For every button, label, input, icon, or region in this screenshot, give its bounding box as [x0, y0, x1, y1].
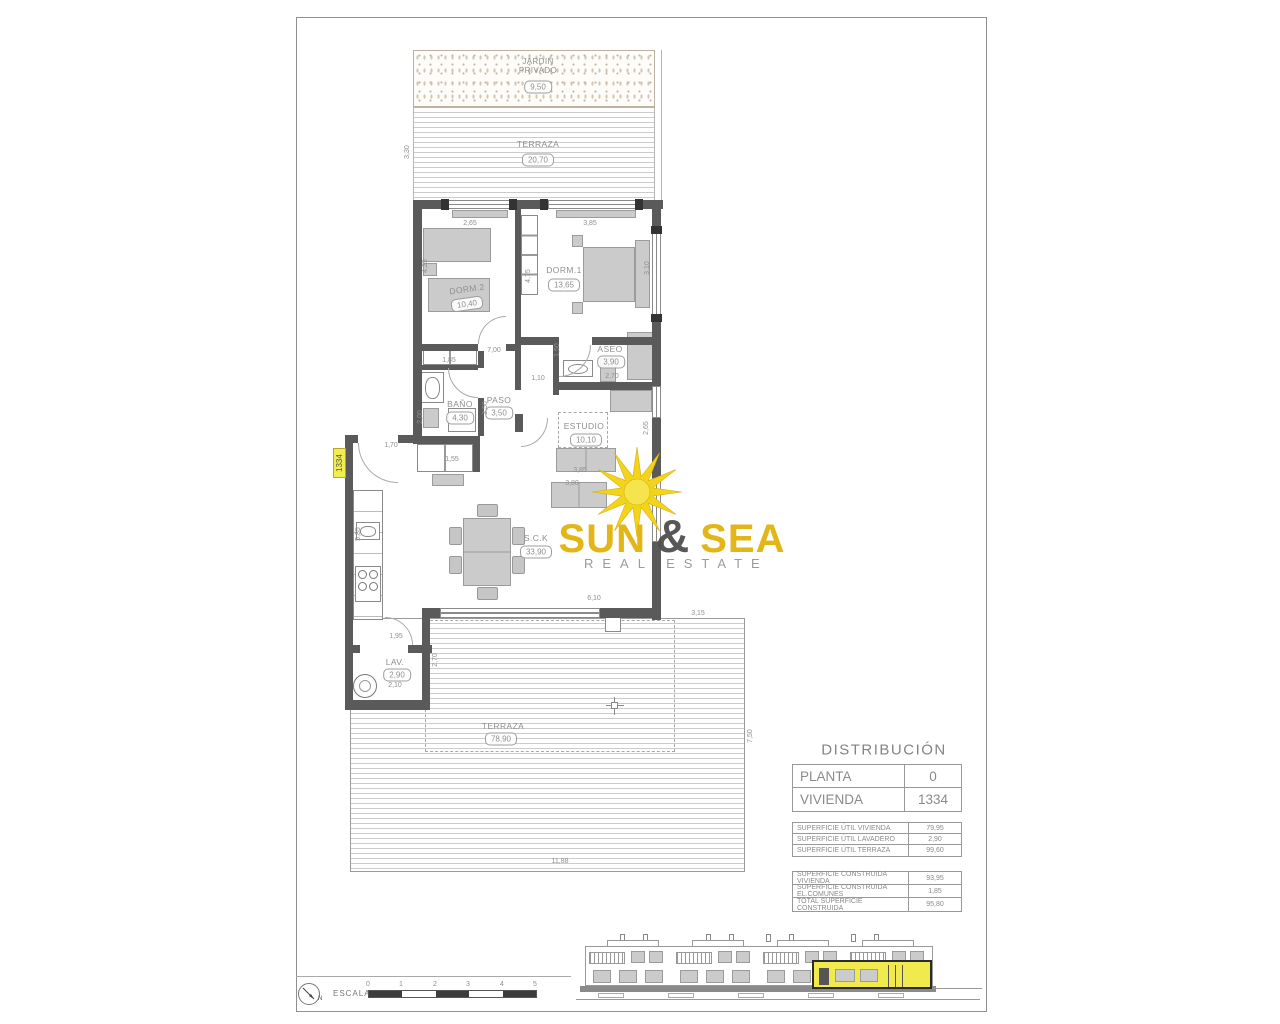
dimension-label: 11,88 [552, 858, 569, 866]
wall [478, 351, 484, 368]
footing [668, 993, 694, 998]
wardrobe [521, 215, 538, 295]
nightstand [572, 235, 583, 247]
door-mat [432, 474, 464, 486]
dimension-label: 4,25 [422, 259, 430, 273]
dimension-label: 1,10 [531, 375, 545, 383]
north-letter: N [318, 996, 322, 1002]
wall-end-marker [651, 314, 662, 322]
burner-icon [358, 570, 367, 579]
dimension-label: 3,30 [404, 145, 412, 159]
dimension-label: 2,00 [417, 410, 425, 424]
bed [423, 228, 491, 262]
dimension-label: 3,85 [583, 220, 597, 228]
roof-vent [766, 934, 771, 942]
table-row: VIVIENDA 1334 [793, 788, 961, 811]
unit-railing-line [902, 965, 903, 987]
building-elevation [576, 928, 982, 1004]
table-row: SUPERFICIE ÚTIL TERRAZA 99,60 [793, 845, 961, 856]
drain-marker [606, 697, 624, 715]
scale-tick: 0 [366, 981, 370, 989]
area-box-dorm1: 13,65 [548, 279, 580, 292]
bed [583, 247, 635, 302]
window [448, 200, 510, 209]
terrace-step [605, 616, 621, 632]
row-value: 79,95 [908, 823, 961, 833]
row-value: 1,85 [908, 885, 961, 897]
window [548, 200, 636, 209]
distribution-main-table: PLANTA 0 VIVIENDA 1334 [792, 764, 962, 812]
dimension-label: 7,50 [747, 729, 755, 743]
dimension-label: 2,65 [463, 220, 477, 228]
table-row: TOTAL SUPERFICIE CONSTRUIDA 95,80 [793, 898, 961, 911]
window [736, 951, 750, 963]
room-label-jardin: JARDIN PRIVADO [506, 57, 570, 75]
dimension-label: 2,70 [605, 373, 619, 381]
footing [598, 993, 624, 998]
scale-tick: 3 [466, 981, 470, 989]
window [645, 970, 663, 983]
scale-tick: 1 [399, 981, 403, 989]
room-label-terraza-top: TERRAZA [517, 139, 559, 149]
dimension-label: 3,15 [691, 610, 705, 618]
wall [413, 436, 480, 444]
chair [449, 556, 462, 574]
room-label-paso: PASO [487, 395, 512, 405]
unit-number-tag: 1334 [333, 448, 346, 478]
wall [345, 645, 360, 653]
area-box-bano: 4,30 [446, 412, 474, 425]
window-sill [452, 210, 508, 218]
room-label-sck: S.C.K [524, 533, 548, 543]
dimension-label: 7,00 [487, 347, 501, 355]
window [652, 233, 661, 315]
wall-end-marker [635, 199, 643, 210]
footing [808, 993, 834, 998]
row-value: 2,90 [908, 834, 961, 844]
row-value: 93,95 [908, 872, 961, 884]
footing [878, 993, 904, 998]
row-label: SUPERFICIE CONSTRUIDA VIVIENDA [793, 871, 908, 885]
burner-icon [369, 570, 378, 579]
logo-ampersand: & [656, 509, 690, 563]
wall [345, 435, 353, 710]
area-box-terraza: 78,90 [485, 733, 517, 746]
dimension-label: 2,10 [388, 682, 402, 690]
room-label-bano: BAÑO [447, 399, 473, 409]
balcony-railing [676, 952, 712, 964]
window [631, 951, 645, 963]
window [767, 970, 785, 983]
window-sill [556, 210, 636, 218]
room-label-terraza: TERRAZA [482, 721, 524, 731]
wall [423, 608, 440, 618]
burner-icon [358, 582, 367, 591]
window [860, 969, 878, 982]
wall [422, 608, 430, 708]
footing [738, 993, 764, 998]
row-value: 0 [904, 765, 961, 787]
scale-segment [369, 991, 402, 997]
dimension-label: 1,95 [389, 633, 403, 641]
dimension-label: 2,70 [432, 653, 440, 667]
chair [449, 527, 462, 545]
ground-line [930, 988, 982, 989]
window [593, 970, 611, 983]
plot-boundary-line [661, 50, 662, 201]
table-row: SUPERFICIE ÚTIL LAVADERO 2,90 [793, 834, 961, 845]
area-box-lav: 2,90 [383, 669, 411, 682]
window [619, 970, 637, 983]
wall [515, 209, 521, 344]
balcony-railing [589, 952, 625, 964]
area-box-jardin: 9,50 [524, 81, 552, 94]
wall [398, 435, 414, 443]
washing-machine [353, 674, 377, 698]
table-row: SUPERFICIE CONSTRUIDA EL.COMUNES 1,85 [793, 885, 961, 898]
dimension-label: 1,85 [442, 357, 456, 365]
dimension-label: 2,65 [643, 421, 651, 435]
logo-tagline: REAL ESTATE [584, 556, 769, 571]
floor-plan-sheet: JARDIN PRIVADO 9,50 TERRAZA 20,70 3,30 T… [0, 0, 1280, 1024]
covered-terrace-outline [425, 620, 675, 752]
dimension-label: 3,50 [482, 401, 490, 415]
dimension-label: 1,50 [554, 343, 562, 357]
chair [477, 504, 498, 517]
window [732, 970, 750, 983]
distribution-title: DISTRIBUCIÓN [821, 742, 947, 759]
row-label: TOTAL SUPERFICIE CONSTRUIDA [793, 898, 908, 912]
window [835, 969, 855, 982]
logo-wordmark: SUN & SEA [556, 509, 788, 563]
window [706, 970, 724, 983]
scale-segment [469, 991, 502, 997]
area-box-sck: 33,90 [520, 546, 552, 559]
window [680, 970, 698, 983]
row-label: PLANTA [793, 769, 904, 784]
toilet [423, 408, 439, 428]
chair [477, 587, 498, 600]
wall-end-marker [441, 199, 449, 210]
ground-line [576, 999, 980, 1000]
row-label: SUPERFICIE ÚTIL TERRAZA [793, 847, 908, 854]
scale-bar [368, 990, 537, 998]
balcony-railing [763, 952, 799, 964]
scale-segment [503, 991, 536, 997]
wall [413, 200, 422, 443]
unit-railing-line [888, 965, 889, 987]
north-compass-icon [298, 983, 320, 1005]
wall [345, 700, 430, 710]
highlighted-unit [812, 960, 932, 989]
room-label-estudio: ESTUDIO [564, 421, 605, 431]
chair [512, 556, 525, 574]
scale-tick: 2 [433, 981, 437, 989]
burner-icon [369, 582, 378, 591]
dimension-label: 5,85 [355, 527, 363, 541]
row-value: 95,80 [908, 898, 961, 911]
row-label: SUPERFICIE ÚTIL VIVIENDA [793, 825, 908, 832]
dimension-label: 3,10 [644, 261, 652, 275]
window [793, 970, 811, 983]
title-block-divider [296, 976, 571, 977]
dimension-label: 1,70 [384, 442, 398, 450]
bathtub [421, 372, 444, 403]
distribution-built-table: SUPERFICIE CONSTRUIDA VIVIENDA 93,95 SUP… [792, 871, 962, 912]
row-value: 99,60 [908, 845, 961, 856]
nightstand [572, 302, 583, 314]
window [652, 386, 661, 418]
sliding-door [440, 608, 600, 618]
room-label-aseo: ASEO [597, 344, 622, 354]
wall-end-marker [540, 199, 548, 210]
dimension-label: 6,10 [587, 595, 601, 603]
scale-segment [436, 991, 469, 997]
shelf [610, 390, 652, 412]
room-label-lav: LAV. [386, 657, 405, 667]
scale-tick: 5 [533, 981, 537, 989]
room-label-dorm1: DORM.1 [546, 265, 581, 275]
dimension-label: 4,75 [525, 269, 533, 283]
row-label: SUPERFICIE CONSTRUIDA EL.COMUNES [793, 884, 908, 898]
row-label: SUPERFICIE ÚTIL LAVADERO [793, 836, 908, 843]
roof-vent [851, 934, 856, 942]
window [649, 951, 663, 963]
wall [515, 344, 521, 390]
wall-end-marker [509, 199, 517, 210]
wall [413, 344, 478, 351]
dimension-label: 1,55 [445, 456, 459, 464]
wall [473, 444, 480, 472]
window [718, 951, 732, 963]
area-box-aseo: 3,90 [597, 356, 625, 369]
wall [600, 608, 661, 618]
unit-railing-line [895, 965, 896, 987]
table-row: SUPERFICIE ÚTIL VIVIENDA 79,95 [793, 823, 961, 834]
unit-door [819, 968, 829, 985]
wall-end-marker [651, 226, 662, 234]
scale-tick: 4 [500, 981, 504, 989]
dining-table [463, 518, 511, 586]
row-label: VIVIENDA [793, 792, 904, 807]
area-box-terraza-top: 20,70 [522, 154, 554, 167]
row-value: 1334 [904, 788, 961, 811]
scale-segment [402, 991, 435, 997]
wall [553, 382, 661, 390]
distribution-util-table: SUPERFICIE ÚTIL VIVIENDA 79,95 SUPERFICI… [792, 822, 962, 857]
table-row: PLANTA 0 [793, 765, 961, 788]
